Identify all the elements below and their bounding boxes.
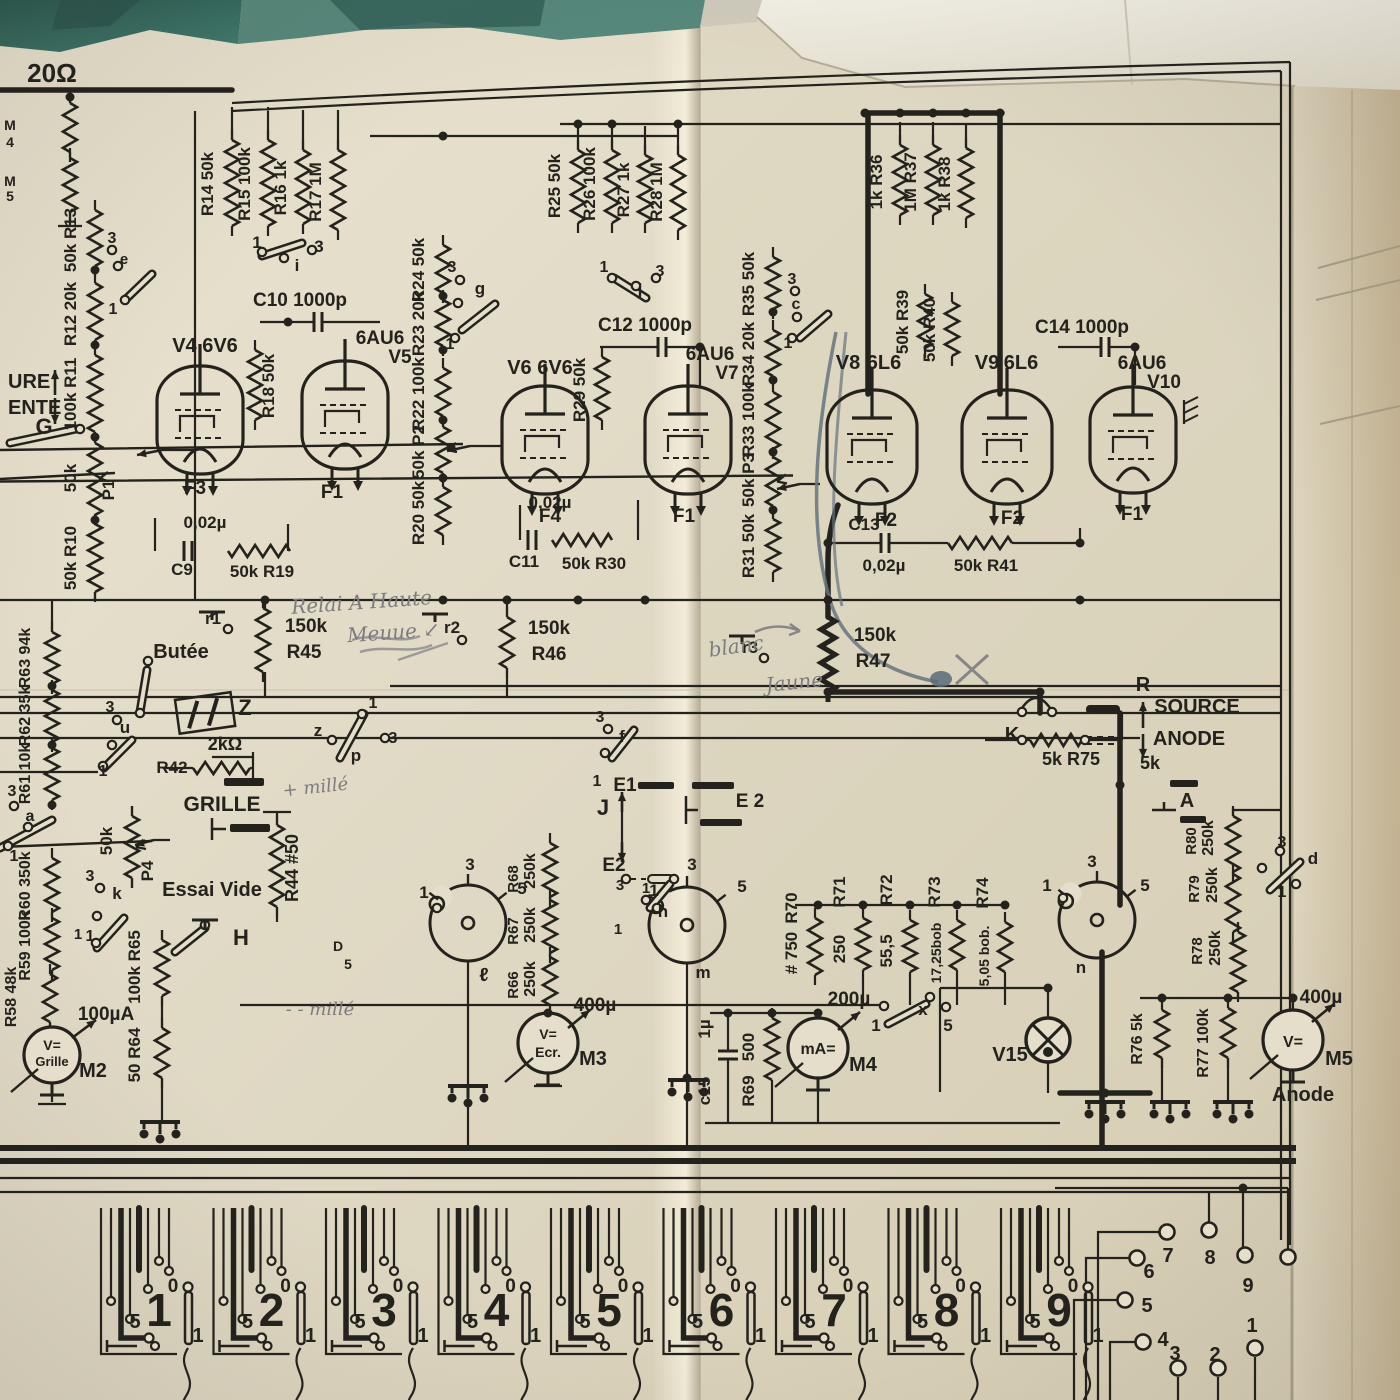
- junction-dot: [261, 596, 270, 605]
- label-r44-50: R44 #50: [282, 834, 302, 902]
- label-r27-1k: R27 1k: [614, 162, 633, 217]
- label-r71: R71: [830, 876, 849, 907]
- label-r15-100k: R15 100k: [235, 147, 254, 221]
- contact-point: [880, 1002, 888, 1010]
- contact-point: [1018, 708, 1026, 716]
- label-anode: Anode: [1272, 1084, 1334, 1106]
- shape: [107, 1297, 115, 1305]
- junction-dot: [859, 901, 868, 910]
- junction-dot: [574, 120, 583, 129]
- shape: [1051, 1342, 1059, 1350]
- label-17-25bob: 17,25bob: [928, 923, 944, 984]
- shape: [601, 1342, 609, 1350]
- label-i: i: [295, 256, 300, 275]
- label-6l6: 6L6: [867, 352, 901, 374]
- label-k: K: [1005, 724, 1020, 746]
- shape: [634, 1283, 643, 1292]
- radial-pin-label: 5: [1141, 1295, 1152, 1317]
- label-h: H: [233, 925, 249, 950]
- junction-dot: [91, 341, 100, 350]
- label-v8: V8: [836, 352, 860, 374]
- label-m: M: [4, 117, 16, 133]
- socket-pin-five: 5: [129, 1311, 140, 1333]
- shape: [1065, 1267, 1073, 1275]
- shape: [1182, 1110, 1191, 1119]
- label-20: 20Ω: [27, 58, 77, 88]
- label-r73: R73: [925, 876, 944, 907]
- label-p1: P1: [99, 480, 118, 501]
- shape: [1101, 1115, 1110, 1124]
- label-3: 3: [108, 230, 117, 247]
- shape: [172, 1130, 181, 1139]
- junction-dot: [48, 682, 57, 691]
- shape: [1150, 1110, 1159, 1119]
- label-r45: R45: [287, 642, 322, 663]
- label-r14-50k: R14 50k: [198, 151, 217, 216]
- label-r69: R69: [739, 1075, 758, 1106]
- shape: [605, 1257, 613, 1265]
- label-e: e: [120, 251, 128, 268]
- label-v: V=: [539, 1026, 557, 1042]
- label-0-02: 0,02µ: [863, 556, 906, 575]
- label-50k: 50k: [61, 463, 80, 492]
- shape: [445, 1297, 453, 1305]
- label-r18-50k: R18 50k: [259, 353, 278, 418]
- shape: [1166, 1115, 1175, 1124]
- label-1: 1: [1042, 876, 1051, 895]
- contact-point: [93, 912, 101, 920]
- label-3: 3: [86, 868, 95, 885]
- label-f1: F1: [673, 506, 696, 527]
- label-m: m: [695, 963, 710, 982]
- socket-number: 7: [821, 1284, 847, 1336]
- contact-point: [456, 276, 464, 284]
- radial-pin-label: 4: [1157, 1329, 1169, 1351]
- junction-dot: [814, 1009, 823, 1018]
- junction-dot: [1076, 539, 1085, 548]
- shape: [409, 1283, 418, 1292]
- label-r46: R46: [532, 644, 567, 665]
- label-3: 3: [596, 709, 605, 726]
- shape: [1084, 1283, 1093, 1292]
- radial-pin-circle: [1202, 1223, 1217, 1238]
- shape: [895, 1297, 903, 1305]
- label-100k-r65: 100k R65: [125, 930, 144, 1004]
- label-1: 1: [871, 1016, 880, 1035]
- label-55-5: 55,5: [877, 934, 896, 967]
- grille-electrode-top: [224, 778, 264, 786]
- junction-dot: [769, 506, 778, 515]
- socket-number: 8: [934, 1284, 960, 1336]
- shape: [615, 1267, 623, 1275]
- socket-number: 3: [371, 1284, 397, 1336]
- label-50k-p2: 50k P2: [409, 425, 428, 479]
- label-but-e: Butée: [153, 641, 209, 663]
- label-r28-1m: R28 1M: [647, 162, 666, 222]
- contact-point: [1292, 880, 1300, 888]
- label-ecr: Ecr.: [535, 1044, 561, 1060]
- label-r63-94k: R63 94k: [17, 628, 34, 689]
- label-50k-r40: 50k R40: [920, 298, 939, 362]
- socket-number: 6: [709, 1284, 735, 1336]
- junction-dot: [929, 109, 938, 118]
- label-v10: V10: [1147, 372, 1181, 393]
- label-k: k: [112, 884, 122, 903]
- junction-dot: [439, 292, 448, 301]
- label-r17-1m: R17 1M: [306, 162, 325, 222]
- shape: [296, 1283, 305, 1292]
- label-5: 5: [6, 188, 14, 204]
- socket-pin-five: 5: [242, 1311, 253, 1333]
- shape: [521, 1283, 530, 1292]
- shape: [220, 1297, 228, 1305]
- photo-of-schematic: 0511051205130514051505160517051805197896…: [0, 0, 1400, 1400]
- label-1: 1: [593, 773, 602, 790]
- label-r26-100k: R26 100k: [580, 147, 599, 221]
- label-3: 3: [788, 271, 797, 288]
- radial-pin-label: 3: [1169, 1343, 1180, 1365]
- contact-point: [1059, 894, 1067, 902]
- socket-pin-five: 5: [467, 1311, 478, 1333]
- label-250k: 250k: [1207, 930, 1224, 966]
- label-150k: 150k: [854, 625, 897, 646]
- shape: [859, 1283, 868, 1292]
- junction-dot: [48, 801, 57, 810]
- junction-dot: [91, 266, 100, 275]
- label-v4-6v6: V4 6V6: [172, 335, 238, 357]
- junction-dot: [1289, 994, 1298, 1003]
- label-50k-r13: 50k R13: [61, 208, 80, 272]
- blue-pencil-blob: [930, 671, 952, 687]
- label-5: 5: [344, 956, 352, 972]
- label-0-02: 0,02µ: [529, 493, 572, 512]
- shape: [953, 1267, 961, 1275]
- label-150k: 150k: [285, 616, 328, 637]
- socket-pin-one: 1: [1092, 1325, 1103, 1347]
- label-r79: R79: [1186, 875, 1203, 903]
- shape: [840, 1267, 848, 1275]
- junction-dot: [91, 516, 100, 525]
- label-3: 3: [656, 263, 665, 280]
- label-c14-1000p: C14 1000p: [1035, 317, 1129, 338]
- shape: [390, 1267, 398, 1275]
- label-r72: R72: [877, 874, 896, 905]
- contact-point: [144, 657, 152, 665]
- label-r61-10k: R61 10k: [17, 744, 34, 805]
- label-1: 1: [109, 301, 118, 318]
- junction-dot: [284, 318, 293, 327]
- junction-dot: [1158, 994, 1167, 1003]
- label-z: z: [314, 721, 323, 740]
- contact-point: [358, 710, 366, 718]
- shape: [1085, 1110, 1094, 1119]
- label-250k: 250k: [1204, 867, 1221, 903]
- label-r25-50k: R25 50k: [545, 153, 564, 218]
- junction-dot: [439, 416, 448, 425]
- junction-dot: [1131, 343, 1140, 352]
- socket-pin-one: 1: [867, 1325, 878, 1347]
- radial-pin-label: 8: [1204, 1247, 1215, 1269]
- shape: [1055, 1257, 1063, 1265]
- label-1k-r36: 1k R36: [867, 155, 886, 210]
- label-r29-50k: R29 50k: [570, 357, 589, 422]
- label-r33-100k: R33 100k: [739, 383, 758, 457]
- shape: [971, 1283, 980, 1292]
- label-m5: M5: [1325, 1048, 1353, 1070]
- socket-pin-five: 5: [1029, 1311, 1040, 1333]
- shape: [268, 1257, 276, 1265]
- label-50k: 50k: [97, 826, 116, 855]
- shape: [1007, 1297, 1015, 1305]
- label-anode: ANODE: [1153, 728, 1225, 750]
- label-r47: R47: [856, 651, 891, 672]
- socket-number: 2: [259, 1284, 285, 1336]
- label-v: V=: [1283, 1034, 1303, 1051]
- label-3: 3: [448, 259, 457, 276]
- junction-dot: [66, 93, 75, 102]
- shape: [1245, 1110, 1254, 1119]
- label-50-r64: 50 R64: [125, 1027, 144, 1082]
- label-e2: E2: [602, 855, 625, 876]
- contact-point: [601, 749, 609, 757]
- label-d: D: [333, 938, 343, 954]
- shape: [1229, 1115, 1238, 1124]
- label-250k: 250k: [522, 853, 539, 889]
- junction-dot: [906, 901, 915, 910]
- label-r16-1k: R16 1k: [271, 160, 290, 215]
- shape: [503, 1267, 511, 1275]
- e2-electrode-bottom: [700, 819, 742, 826]
- label-1: 1: [784, 335, 793, 352]
- socket-pin-five: 5: [692, 1311, 703, 1333]
- shape: [278, 1267, 286, 1275]
- label-r20-50k: R20 50k: [409, 480, 428, 545]
- label-d: d: [1308, 849, 1318, 868]
- shape: [376, 1342, 384, 1350]
- shape: [728, 1267, 736, 1275]
- label-r2: r2: [444, 618, 460, 637]
- shape: [668, 1088, 677, 1097]
- label-r70: R70: [782, 892, 801, 923]
- junction-dot: [824, 539, 833, 548]
- contact-point: [942, 1003, 950, 1011]
- label-400: 400µ: [1300, 987, 1343, 1008]
- shape: [464, 1099, 473, 1108]
- label-3: 3: [687, 855, 696, 874]
- label-mill: - - millé: [286, 999, 355, 1020]
- contact-point: [1048, 708, 1056, 716]
- radial-pin-circle: [1118, 1293, 1133, 1308]
- shape: [746, 1283, 755, 1292]
- socket-pin-five: 5: [917, 1311, 928, 1333]
- relay-a-electrode: [1170, 780, 1198, 787]
- schematic-canvas: 0511051205130514051505160517051805197896…: [0, 0, 1400, 1400]
- junction-dot: [769, 376, 778, 385]
- label-v15: V15: [992, 1044, 1028, 1066]
- label-x: x: [918, 1000, 928, 1019]
- label-r34-20k: R34 20k: [739, 321, 758, 386]
- e1-electrode: [638, 782, 674, 789]
- contact-point: [760, 654, 768, 662]
- label-3: 3: [8, 783, 17, 800]
- contact-point: [1081, 736, 1089, 744]
- contact-point: [1258, 864, 1266, 872]
- label-c15: c15: [695, 1077, 714, 1105]
- radial-pin-circle: [1136, 1335, 1151, 1350]
- shape: [184, 1283, 193, 1292]
- label-50k-p3: 50k P3: [739, 453, 758, 507]
- label-h: h: [658, 902, 668, 921]
- label-1: 1: [419, 883, 428, 902]
- label-100-a: 100µA: [78, 1004, 135, 1025]
- label-500: 500: [739, 1033, 758, 1061]
- lamp-V15: [1026, 1018, 1070, 1062]
- label-f3: F3: [184, 478, 206, 499]
- socket-number: 5: [596, 1284, 622, 1336]
- junction-dot: [574, 596, 583, 605]
- label-f: f: [619, 727, 625, 746]
- radial-pin-label: 7: [1162, 1245, 1173, 1267]
- junction-dot: [724, 1009, 733, 1018]
- radial-pin-label: 2: [1209, 1344, 1220, 1366]
- label-r12-20k: R12 20k: [61, 281, 80, 346]
- junction-dot: [769, 308, 778, 317]
- label-200: 200µ: [828, 989, 871, 1010]
- shape: [826, 1342, 834, 1350]
- junction-dot: [439, 474, 448, 483]
- shape: [264, 1342, 272, 1350]
- label-6au6: 6AU6: [1118, 353, 1167, 374]
- label-m2: M2: [79, 1060, 107, 1082]
- label-1: 1: [614, 921, 622, 938]
- contact-point: [280, 254, 288, 262]
- label-50k-r10: 50k R10: [61, 526, 80, 590]
- radial-pin-circle: [1130, 1251, 1145, 1266]
- label-r76-5k: R76 5k: [1129, 1013, 1146, 1065]
- label-r77-100k: R77 100k: [1195, 1008, 1212, 1077]
- socket-pin-one: 1: [305, 1325, 316, 1347]
- label-50k-r41: 50k R41: [954, 556, 1018, 575]
- label-250k: 250k: [522, 907, 539, 943]
- junction-dot: [641, 596, 650, 605]
- label-r80: R80: [1183, 827, 1200, 855]
- shape: [830, 1257, 838, 1265]
- junction-dot: [544, 1009, 553, 1018]
- label-source: SOURCE: [1154, 696, 1240, 718]
- junction-dot: [439, 596, 448, 605]
- socket-number: 1: [146, 1284, 172, 1336]
- socket-pin-five: 5: [354, 1311, 365, 1333]
- label-3: 3: [314, 237, 323, 256]
- label-grille: GRILLE: [184, 793, 261, 816]
- contact-point: [608, 274, 616, 282]
- label-m: M: [4, 173, 16, 189]
- socket-pin-five: 5: [579, 1311, 590, 1333]
- label-1m-r37: 1M R37: [901, 152, 920, 212]
- radial-pin-circle: [1160, 1225, 1175, 1240]
- label-3: 3: [465, 855, 474, 874]
- label-j: j: [637, 280, 643, 299]
- junction-dot: [861, 109, 870, 118]
- shape: [332, 1297, 340, 1305]
- junction-dot: [1101, 1089, 1110, 1098]
- label-100k-r11: 100k R11: [61, 358, 80, 431]
- label-r58-48k: R58 48k: [3, 967, 20, 1028]
- contact-point: [791, 287, 799, 295]
- label-z: Z: [238, 695, 251, 720]
- label-c13: C13: [848, 515, 879, 534]
- label-g: G: [35, 414, 52, 439]
- contact-point: [136, 709, 144, 717]
- shape: [943, 1257, 951, 1265]
- radial-pin-label: 6: [1143, 1261, 1154, 1283]
- label-r74: R74: [973, 877, 992, 909]
- label-p: p: [351, 746, 361, 765]
- junction-dot: [962, 109, 971, 118]
- label-6l6: 6L6: [1004, 352, 1038, 374]
- socket-pin-one: 1: [530, 1325, 541, 1347]
- contact-point: [224, 625, 232, 633]
- junction-dot: [953, 901, 962, 910]
- radial-pin-circle: [1238, 1248, 1253, 1263]
- contact-point: [454, 299, 462, 307]
- label-3: 3: [1087, 852, 1096, 871]
- radial-pin-circle: [1281, 1250, 1296, 1265]
- label-2k: 2kΩ: [208, 734, 242, 754]
- shape: [155, 1257, 163, 1265]
- label-3: 3: [389, 730, 398, 747]
- shape: [140, 1130, 149, 1139]
- label-r1: r1: [205, 609, 221, 628]
- radial-pin-label: 1: [1246, 1315, 1257, 1337]
- label-v: V=: [43, 1037, 61, 1053]
- label-r66: R66: [505, 971, 522, 999]
- label-r78: R78: [1189, 937, 1206, 965]
- label-5-05-bob: 5,05 bob.: [976, 926, 992, 987]
- label-a: a: [26, 808, 35, 825]
- label-400: 400µ: [574, 995, 617, 1016]
- socket-pin-five: 5: [804, 1311, 815, 1333]
- shape: [1213, 1110, 1222, 1119]
- contact-point: [108, 741, 116, 749]
- junction-dot: [1239, 1184, 1248, 1193]
- label-v7: V7: [715, 363, 738, 384]
- label-v6-6v6: V6 6V6: [507, 357, 573, 379]
- junction-dot: [768, 1009, 777, 1018]
- label-250: 250: [830, 935, 849, 963]
- label-1: 1µ: [695, 1019, 714, 1038]
- label-c11: C11: [509, 552, 539, 571]
- socket-number: 4: [484, 1284, 510, 1336]
- k-slot-contact: [1086, 705, 1120, 714]
- contact-point: [670, 875, 678, 883]
- label-1: 1: [252, 233, 261, 252]
- label-1: 1: [446, 336, 455, 353]
- contact-point: [108, 246, 116, 254]
- label-1k-r38: 1k R38: [935, 157, 954, 212]
- radial-pin-circle: [1248, 1341, 1263, 1356]
- label-ma: mA=: [800, 1041, 835, 1058]
- label-a: A: [1180, 790, 1194, 812]
- label-f1: F1: [1121, 504, 1144, 525]
- label-1: 1: [74, 926, 82, 943]
- label-1: 1: [99, 763, 108, 780]
- label-j: J: [597, 795, 609, 820]
- label-u: u: [120, 718, 130, 737]
- junction-dot: [1001, 901, 1010, 910]
- radial-pin-label: 9: [1242, 1275, 1253, 1297]
- label-5k-r75: 5k R75: [1042, 749, 1100, 769]
